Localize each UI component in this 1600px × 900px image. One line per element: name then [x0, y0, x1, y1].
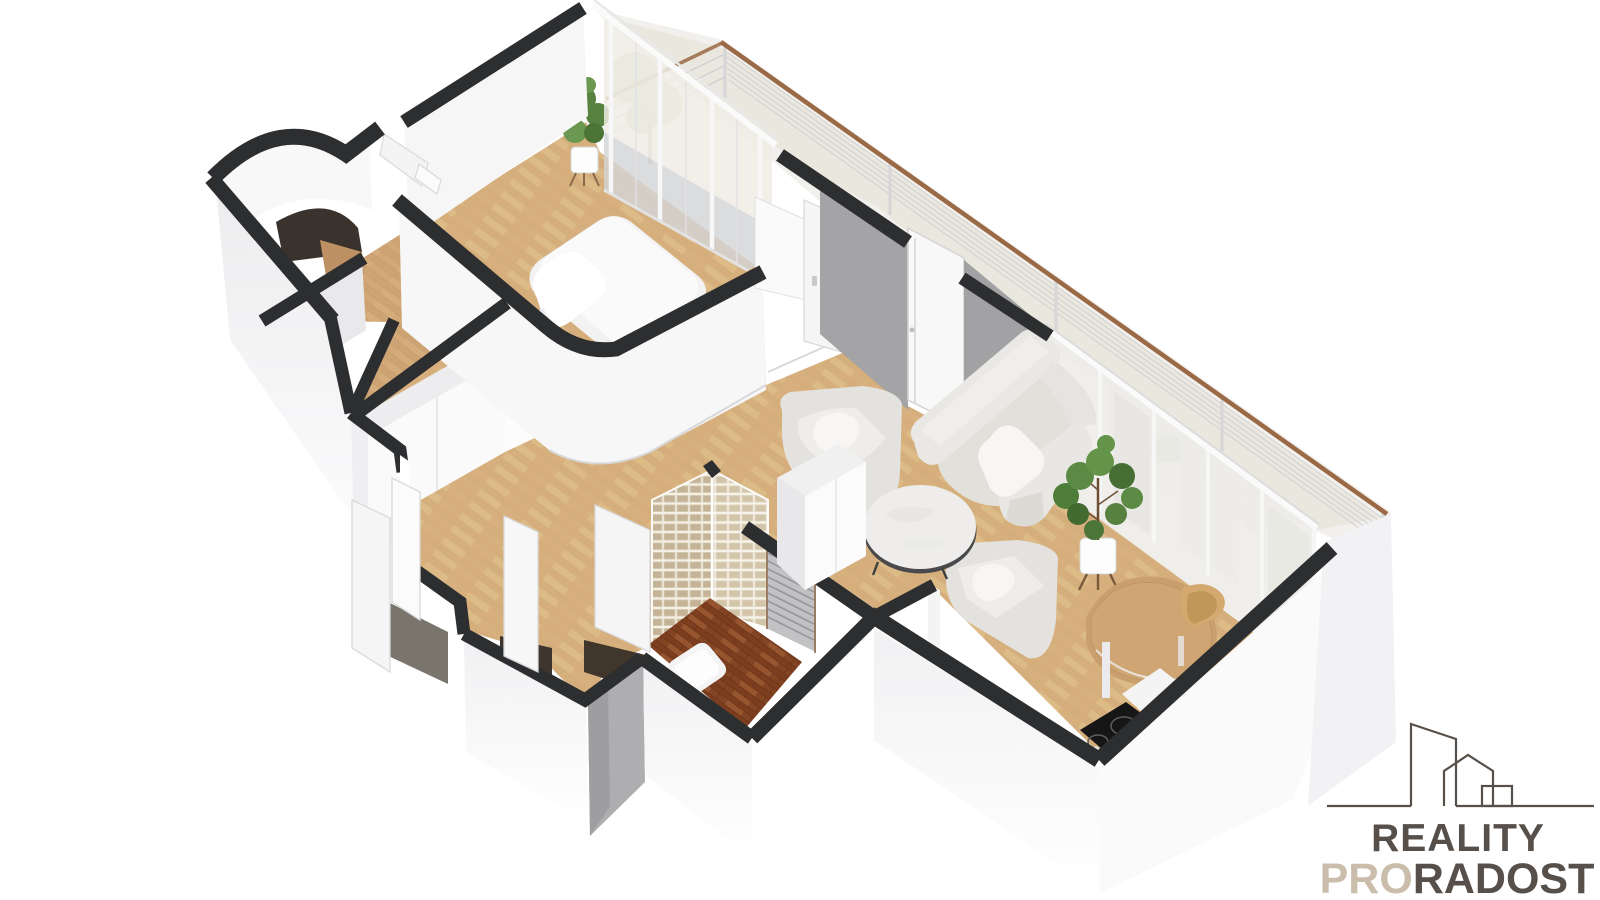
svg-text:PRORADOST: PRORADOST	[1320, 855, 1595, 900]
svg-text:REALITY: REALITY	[1371, 817, 1545, 860]
